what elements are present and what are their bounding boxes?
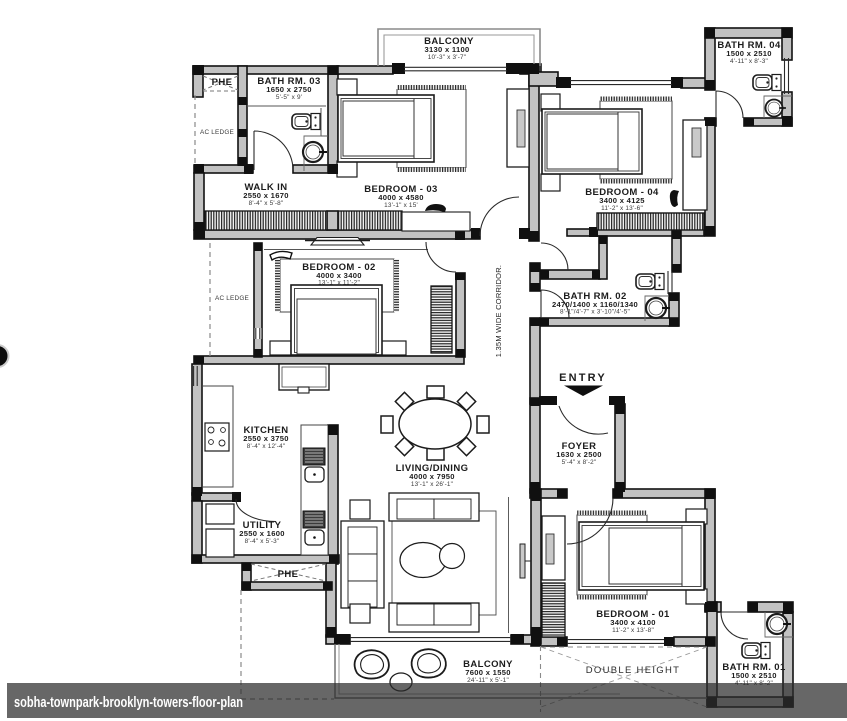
svg-text:24'-11" x 5'-1": 24'-11" x 5'-1" (467, 677, 509, 684)
svg-text:sobha-townpark-brooklyn-towers: sobha-townpark-brooklyn-towers-floor-pla… (14, 695, 243, 711)
svg-text:3400 x 4100: 3400 x 4100 (610, 618, 656, 627)
svg-text:1.35M WIDE CORRIDOR.: 1.35M WIDE CORRIDOR. (494, 265, 503, 358)
svg-text:8'-4" x 5'-3": 8'-4" x 5'-3" (245, 538, 280, 545)
svg-text:4'-11" x 8'-3": 4'-11" x 8'-3" (730, 58, 768, 65)
svg-text:8'-1"/4'-7" x 3'-10"/4'-5": 8'-1"/4'-7" x 3'-10"/4'-5" (560, 309, 630, 316)
svg-text:11'-2" x 13'-8": 11'-2" x 13'-8" (612, 627, 654, 634)
svg-text:8'-4" x 12'-4": 8'-4" x 12'-4" (247, 443, 286, 450)
svg-text:13'-1" x 15': 13'-1" x 15' (384, 202, 418, 209)
svg-text:7600 x 1550: 7600 x 1550 (465, 668, 511, 677)
svg-text:PHE: PHE (212, 77, 233, 88)
svg-text:AC LEDGE: AC LEDGE (215, 295, 249, 302)
svg-text:2550 x 1670: 2550 x 1670 (243, 191, 289, 200)
svg-text:8'-4" x 5'-8": 8'-4" x 5'-8" (249, 200, 284, 207)
svg-text:4000 x 7950: 4000 x 7950 (409, 472, 455, 481)
svg-text:2550 x 1600: 2550 x 1600 (239, 529, 285, 538)
svg-text:5'-4" x 8'-2": 5'-4" x 8'-2" (562, 459, 597, 466)
svg-text:PHE: PHE (278, 569, 299, 580)
svg-text:1630 x 2500: 1630 x 2500 (556, 450, 602, 459)
svg-text:1500 x 2510: 1500 x 2510 (731, 671, 777, 680)
svg-text:DOUBLE HEIGHT: DOUBLE HEIGHT (586, 665, 681, 676)
svg-text:5'-5" x 9': 5'-5" x 9' (276, 94, 302, 101)
svg-text:3400 x 4125: 3400 x 4125 (599, 196, 645, 205)
svg-text:4000 x 4580: 4000 x 4580 (378, 193, 424, 202)
svg-text:13'-1" x 26'-1": 13'-1" x 26'-1" (411, 481, 453, 488)
svg-text:13'-1" x 11'-2": 13'-1" x 11'-2" (318, 280, 360, 287)
svg-text:3130 x 1100: 3130 x 1100 (424, 45, 469, 54)
svg-text:11'-2" x 13'-6": 11'-2" x 13'-6" (601, 205, 643, 212)
svg-text:1650 x 2750: 1650 x 2750 (266, 85, 312, 94)
svg-text:ENTRY: ENTRY (559, 372, 607, 384)
svg-text:1500 x 2510: 1500 x 2510 (726, 49, 772, 58)
svg-text:2550 x 3750: 2550 x 3750 (243, 434, 289, 443)
svg-text:AC LEDGE: AC LEDGE (200, 129, 234, 136)
svg-text:10'-3" x 3'-7": 10'-3" x 3'-7" (428, 54, 467, 61)
